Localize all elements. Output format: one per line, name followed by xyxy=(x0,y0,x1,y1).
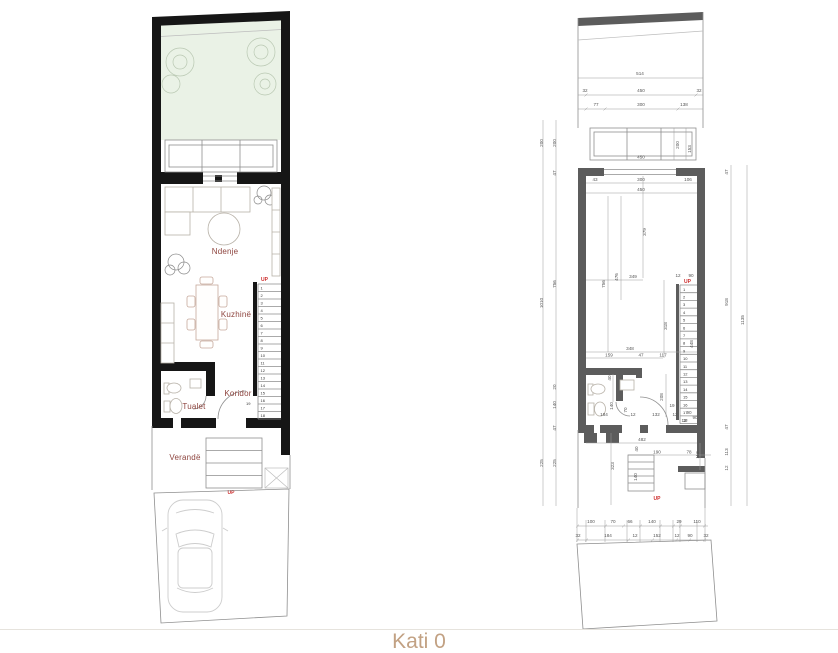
up-label: UP xyxy=(684,279,692,285)
dim-label: 19 xyxy=(669,403,675,408)
garden-area xyxy=(161,16,281,140)
dim-label: 32 xyxy=(582,88,588,93)
dim-label: 140 xyxy=(552,401,557,409)
left-plan: UP 1 2 3 4 5 6 7 8 9 10 11 12 13 14 15 1… xyxy=(152,11,290,623)
dim-label: 756 xyxy=(552,280,557,288)
dim-label: 918 xyxy=(724,298,729,306)
dim-label: 184 xyxy=(604,533,612,538)
caption-bar: Kati 0 xyxy=(0,629,838,652)
dim-label: 153 xyxy=(687,145,692,153)
stair-number: 5 xyxy=(261,316,264,321)
car-top-view xyxy=(162,500,228,612)
stair-number: 16 xyxy=(683,402,688,407)
dim-label: 47 xyxy=(552,170,557,176)
dim-label: 138 xyxy=(680,102,688,107)
dim-label: 90 xyxy=(692,415,698,420)
stair-number: 14 xyxy=(683,387,688,392)
stair-number: 3 xyxy=(261,301,264,306)
plant-living-left xyxy=(165,254,190,275)
stair-number: 15 xyxy=(683,395,688,400)
stairs-right-plan: UP 1 2 3 4 5 6 7 8 9 10 11 12 13 14 15 1… xyxy=(680,279,697,424)
stair-number: 7 xyxy=(261,331,264,336)
stair-number: 8 xyxy=(261,338,264,343)
round-table xyxy=(208,213,240,245)
dim-label: 113 xyxy=(695,451,700,459)
room-label-corridor: Koridor xyxy=(224,389,251,398)
dim-label: 140 xyxy=(648,519,656,524)
dim-label: 12 xyxy=(672,412,678,417)
dim-label: 200 xyxy=(552,139,557,147)
dim-label: 225 xyxy=(539,459,544,467)
stair-number: 1 xyxy=(261,286,264,291)
driveway-right xyxy=(577,540,717,629)
room-label-living: Ndenje xyxy=(212,247,239,256)
dim-label: 12 xyxy=(681,418,687,423)
dim-label: 100 xyxy=(587,519,595,524)
dim-label: 40 xyxy=(634,446,639,452)
stair-number: 13 xyxy=(261,376,266,381)
stair-number: 9 xyxy=(683,348,686,353)
dim-label: 47 xyxy=(638,353,644,358)
right-plan: UP 1 2 3 4 5 6 7 8 9 10 11 12 13 14 15 1… xyxy=(539,12,747,629)
dim-label: 47 xyxy=(724,169,729,175)
dim-label: 323 xyxy=(610,462,615,470)
plan-caption: Kati 0 xyxy=(0,630,838,652)
dim-label: 29 xyxy=(676,519,682,524)
room-label-toilet: Tualet xyxy=(182,402,206,411)
dim-label: 78 xyxy=(686,450,692,455)
stair-number: 5 xyxy=(683,318,686,323)
dim-label: 450 xyxy=(637,187,645,192)
dimension-labels: 514 32 450 32 77 300 138 450 200 153 200… xyxy=(539,71,745,538)
dim-label: 113 xyxy=(724,448,729,456)
room-label-veranda: Verandë xyxy=(169,453,201,462)
dim-label: 379 xyxy=(642,228,647,236)
dim-label: 20 xyxy=(552,384,557,390)
dim-label: 450 xyxy=(637,88,645,93)
dim-label: 1010 xyxy=(539,297,544,308)
dim-label: 70 xyxy=(610,519,616,524)
stair-number: 1 xyxy=(683,287,686,292)
stair-number: 11 xyxy=(261,361,266,366)
stair-number: 9 xyxy=(261,346,264,351)
stair-number: 10 xyxy=(261,353,266,358)
dim-label: 756 xyxy=(601,280,606,288)
stair-number: 18 xyxy=(261,413,266,418)
stair-number: 10 xyxy=(683,356,688,361)
stair-number: 6 xyxy=(261,323,264,328)
stair-number: 4 xyxy=(683,310,686,315)
stair-number: 12 xyxy=(683,372,688,377)
stair-number: 14 xyxy=(261,383,266,388)
dim-label: 43 xyxy=(592,177,598,182)
dim-label: 12 xyxy=(724,465,729,471)
floor-plan-sheet: UP 1 2 3 4 5 6 7 8 9 10 11 12 13 14 15 1… xyxy=(0,0,838,650)
dim-label: 140 xyxy=(633,473,638,481)
dim-label: 90 xyxy=(688,273,694,278)
stair-number: 6 xyxy=(683,325,686,330)
dim-label: 12 xyxy=(632,533,638,538)
dim-label: 200 xyxy=(675,141,680,149)
dim-label: 200 xyxy=(539,139,544,147)
dim-label: 448 xyxy=(689,340,694,348)
dim-label: 190 xyxy=(653,450,661,455)
dim-label: 482 xyxy=(638,437,646,442)
dim-label: 70 xyxy=(623,407,628,413)
dim-label: 12 xyxy=(675,273,681,278)
dim-label: 117 xyxy=(659,353,667,358)
room-label-kitchen: Kuzhinë xyxy=(221,310,252,319)
dim-label: 476 xyxy=(614,273,619,281)
stair-number: 11 xyxy=(683,364,688,369)
stair-number: 2 xyxy=(683,295,686,300)
terrace-window-band xyxy=(165,140,277,172)
dim-label: 32 xyxy=(696,88,702,93)
right-top-wall xyxy=(578,12,703,26)
stair-number: 8 xyxy=(683,341,686,346)
dim-label: 47 xyxy=(552,425,557,431)
dim-label: 152 xyxy=(653,533,661,538)
stair-number: 17 xyxy=(261,406,266,411)
stair-number: 15 xyxy=(261,391,266,396)
dim-label: 110 xyxy=(693,519,701,524)
dim-label: 132 xyxy=(652,412,660,417)
dim-label: 318 xyxy=(663,322,668,330)
dim-label: 208 xyxy=(659,393,664,401)
stair-number: 13 xyxy=(683,379,688,384)
dim-label: 514 xyxy=(636,71,644,76)
shelf-right-wall xyxy=(272,188,280,276)
stair-number: 7 xyxy=(683,333,686,338)
dim-label: 225 xyxy=(552,459,557,467)
dim-label: 66 xyxy=(627,519,633,524)
dim-label: 159 xyxy=(605,353,613,358)
dim-label: 349 xyxy=(629,274,637,279)
stair-number: 3 xyxy=(683,302,686,307)
tread-dim: 19 xyxy=(246,401,251,406)
top-window xyxy=(604,170,676,175)
dim-label: 1135 xyxy=(740,315,745,325)
dim-label: 40 xyxy=(607,375,612,381)
dim-label: 32 xyxy=(575,533,581,538)
dim-label: 106 xyxy=(684,177,692,182)
stair-number: 16 xyxy=(261,398,266,403)
dim-label: 90 xyxy=(687,533,693,538)
stair-number: 4 xyxy=(261,308,264,313)
dim-label: 184 xyxy=(600,412,608,417)
right-plan-walls xyxy=(578,168,705,472)
dim-label: 300 xyxy=(637,102,645,107)
dim-label: 77 xyxy=(593,102,599,107)
dim-label: 32 xyxy=(703,533,709,538)
dim-label: 12 xyxy=(674,533,680,538)
dim-label: 300 xyxy=(637,177,645,182)
dim-label: 90 xyxy=(686,410,692,415)
dim-label: 348 xyxy=(626,346,634,351)
stair-number: 12 xyxy=(261,368,266,373)
dim-label: 47 xyxy=(724,424,729,430)
floor-plans-svg: UP 1 2 3 4 5 6 7 8 9 10 11 12 13 14 15 1… xyxy=(0,0,838,629)
dim-label: 450 xyxy=(637,155,645,160)
kitchen-counter xyxy=(161,303,174,363)
dimension-lines xyxy=(543,78,747,542)
stair-number: 2 xyxy=(261,293,264,298)
up-label: UP xyxy=(654,496,662,502)
up-label: UP xyxy=(261,277,269,283)
dim-label: 140 xyxy=(609,402,614,410)
dim-label: 12 xyxy=(630,412,636,417)
driveway-left xyxy=(154,489,289,623)
